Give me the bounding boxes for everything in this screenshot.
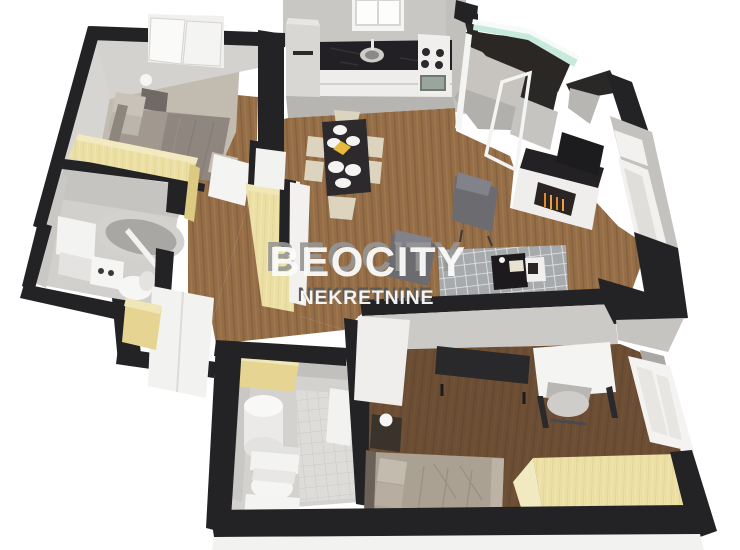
- svg-text:BEOCITY: BEOCITY: [269, 238, 466, 285]
- svg-text:NEKRETNINE: NEKRETNINE: [300, 287, 435, 309]
